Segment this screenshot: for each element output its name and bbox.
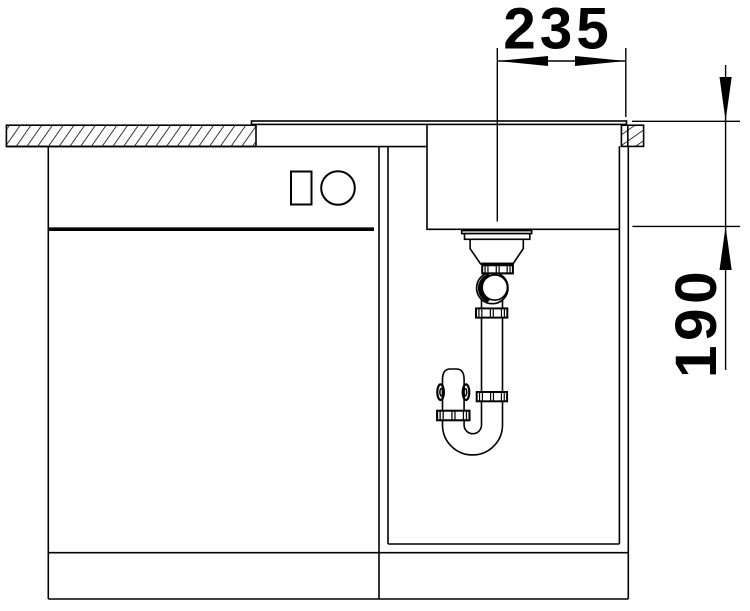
svg-text:235: 235 xyxy=(503,0,613,62)
svg-text:190: 190 xyxy=(664,267,729,378)
